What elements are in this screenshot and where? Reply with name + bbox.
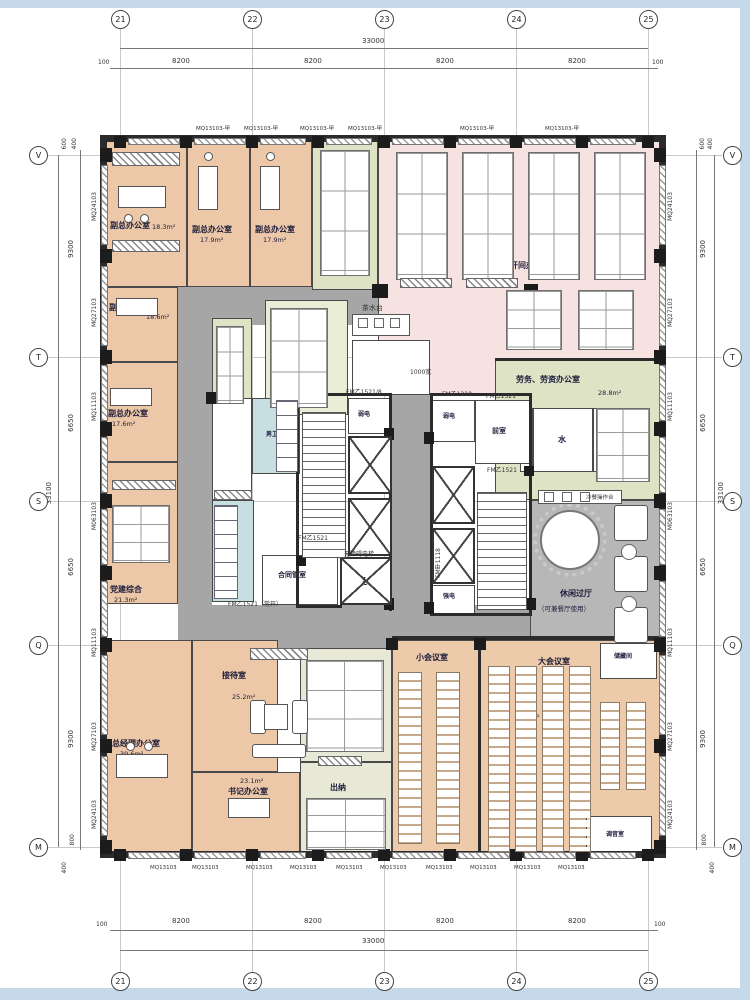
cabinet-row: [112, 480, 176, 490]
round-dining-table: [540, 510, 600, 570]
dimension-label: 800: [702, 834, 708, 845]
appliance: [390, 318, 400, 328]
meeting-chair-rows: [569, 666, 591, 852]
column: [100, 422, 112, 436]
window-strip: [659, 365, 666, 421]
window-strip: [659, 266, 666, 346]
room-label-strong-current: 强电: [443, 594, 455, 600]
corridor-left: [178, 287, 212, 657]
room-area-deputy-office-c: 17.9m²: [263, 237, 286, 244]
appliance: [358, 318, 368, 328]
dimension-label: 400: [72, 138, 78, 149]
grid-bubble-25: 25: [639, 10, 658, 29]
dimension-line: [714, 155, 715, 847]
annotation: FM乙1521（常开）: [228, 602, 282, 608]
dimension-label: 9300: [68, 730, 75, 748]
room-label-reception-room: 接待室: [222, 672, 246, 680]
grid-bubble-M: M: [29, 838, 48, 857]
room-label-anteroom: 前室: [492, 428, 506, 435]
window-strip: [101, 437, 108, 493]
wall-type-label: MQ11103: [92, 628, 98, 657]
cabinet-row: [466, 278, 518, 288]
column: [510, 136, 522, 148]
wall-type-label: MQ11103: [668, 392, 674, 421]
dimension-label: 33000: [362, 38, 384, 45]
dimension-label: 9300: [700, 240, 707, 258]
grid-bubble-Q: Q: [29, 636, 48, 655]
window-strip: [194, 852, 246, 859]
column: [654, 350, 666, 364]
column: [654, 739, 666, 753]
dimension-label: 600: [62, 138, 68, 149]
office-desk: [228, 798, 270, 818]
window-strip: [101, 266, 108, 346]
cabinet-row: [318, 756, 362, 766]
office-desk: [198, 166, 218, 210]
meeting-chair-rows: [398, 672, 422, 844]
dimension-label: 400: [708, 138, 714, 149]
wall-type-label: MQ27103: [668, 298, 674, 327]
cabinet-row: [112, 240, 180, 252]
column: [114, 849, 126, 861]
workstation-cluster: [320, 150, 370, 276]
column: [386, 638, 398, 650]
wall-type-label: MQ27103: [92, 298, 98, 327]
wall-type-label: MQ13103: [192, 866, 219, 872]
dimension-line: [58, 155, 59, 847]
workstation-cluster: [270, 308, 328, 408]
grid-bubble-22: 22: [243, 972, 262, 991]
grid-bubble-T: T: [723, 348, 742, 367]
wall-type-label: M063103: [668, 502, 674, 530]
window-strip: [101, 581, 108, 637]
column: [100, 494, 112, 508]
column: [378, 136, 390, 148]
window-strip: [458, 138, 510, 145]
column: [444, 136, 456, 148]
wall-type-label: MQ13103: [380, 866, 407, 872]
room-label-storage-room: 储藏间: [614, 654, 632, 660]
meeting-chair-rows: [600, 702, 620, 790]
window-strip: [101, 165, 108, 245]
chair: [144, 742, 153, 751]
cabinet-row: [250, 648, 308, 660]
cabinet-row: [112, 152, 180, 166]
wall-segment: [296, 605, 342, 608]
dimension-label: 8200: [568, 918, 586, 925]
wall-type-label: MQ13103: [558, 866, 585, 872]
wall-type-label: MQ11103: [92, 392, 98, 421]
meeting-chair-rows: [626, 702, 646, 790]
annotation: 1000宽: [410, 370, 431, 376]
column: [654, 840, 666, 854]
column: [206, 392, 216, 404]
column: [654, 148, 666, 162]
window-strip: [194, 138, 246, 145]
room-storage-room: [600, 643, 657, 679]
window-strip: [458, 852, 510, 859]
column: [180, 136, 192, 148]
room-deputy-office-c: [250, 140, 312, 287]
room-area-labor-office: 28.8m²: [598, 390, 621, 397]
room-label-deputy-office-a: 副总办公室: [110, 222, 150, 230]
room-area-party-building-office: 21.3m²: [114, 597, 137, 604]
room-strong-current: [432, 585, 475, 615]
column: [654, 566, 666, 580]
column: [100, 148, 112, 162]
window-strip: [326, 852, 372, 859]
workstation-cluster: [216, 326, 244, 404]
column: [654, 249, 666, 263]
wall-type-label: MQ13103: [514, 866, 541, 872]
column: [100, 350, 112, 364]
column: [312, 136, 324, 148]
grid-bubble-24: 24: [507, 10, 526, 29]
workstation-cluster: [578, 290, 634, 350]
annotation: 茶水台: [362, 305, 383, 312]
dimension-label: 6650: [68, 558, 75, 576]
workstation-cluster: [596, 408, 650, 482]
column: [654, 494, 666, 508]
grid-bubble-21: 21: [111, 972, 130, 991]
room-label-sound-room: 调音室: [606, 832, 624, 838]
room-label-deputy-office-c: 副总办公室: [255, 226, 295, 234]
dimension-label: 6650: [700, 414, 707, 432]
chair: [204, 152, 213, 161]
dimension-label: 9300: [700, 730, 707, 748]
dimension-label: 8200: [304, 918, 322, 925]
column: [100, 249, 112, 263]
grid-bubble-V: V: [723, 146, 742, 165]
annotation: FM甲1118: [436, 548, 442, 578]
column: [642, 136, 654, 148]
appliance: [544, 492, 554, 502]
room-label-large-meeting-room: 大会议室: [538, 658, 570, 666]
room-pantry-room: [352, 340, 430, 395]
office-desk: [118, 186, 166, 208]
room-label-weak-current-right: 弱电: [443, 414, 455, 420]
chair: [140, 214, 149, 223]
dimension-label: 100: [96, 922, 107, 928]
grid-bubble-M: M: [723, 838, 742, 857]
workstation-cluster: [528, 152, 580, 280]
annotation: FM乙1521: [486, 394, 516, 400]
column: [654, 422, 666, 436]
window-strip: [392, 138, 444, 145]
room-label-party-building-office: 党建综合: [110, 586, 142, 594]
wall-type-label: MQ13103-甲: [545, 127, 579, 133]
wall-type-label: MQ13103: [290, 866, 317, 872]
sofa: [292, 700, 308, 734]
dimension-label: 600: [700, 138, 706, 149]
column: [246, 136, 258, 148]
room-area-deputy-office-b: 17.9m²: [200, 237, 223, 244]
grid-bubble-S: S: [29, 492, 48, 511]
dimension-line: [696, 150, 697, 850]
column: [100, 566, 112, 580]
wall-type-label: M063103: [92, 502, 98, 530]
office-desk: [260, 166, 280, 210]
room-label-deputy-office-e: 副总办公室: [108, 410, 148, 418]
wall-type-label: MQ11103: [668, 628, 674, 657]
workstation-cluster: [112, 505, 170, 563]
dimension-line: [80, 150, 81, 850]
dimension-label: 800: [70, 834, 76, 845]
wall-type-label: MQ24103: [92, 192, 98, 221]
elevator-shaft: [432, 466, 475, 524]
column: [180, 849, 192, 861]
sofa: [614, 505, 648, 541]
dimension-label: 6650: [700, 558, 707, 576]
office-desk: [110, 388, 152, 406]
column: [576, 136, 588, 148]
appliance: [562, 492, 572, 502]
workstation-cluster: [506, 290, 562, 350]
workstation-cluster: [306, 660, 384, 752]
wall-type-label: MQ13103: [150, 866, 177, 872]
room-area-lounge-hall: （可兼餐厅使用）: [538, 606, 590, 613]
window-strip: [659, 756, 666, 836]
window-strip: [590, 138, 636, 145]
room-label-contract-room: 合同管室: [278, 572, 306, 579]
wall-type-label: MQ27103: [92, 722, 98, 751]
grid-bubble-S: S: [723, 492, 742, 511]
wall-type-label: MQ24103: [668, 192, 674, 221]
sofa: [614, 607, 648, 643]
column: [378, 849, 390, 861]
office-desk: [116, 298, 158, 316]
cabinet-row: [400, 278, 452, 288]
sofa: [614, 556, 648, 592]
dimension-label: 6650: [68, 414, 75, 432]
elevator-shaft: [348, 498, 392, 556]
chair: [126, 742, 135, 751]
chair: [266, 152, 275, 161]
room-area-secretary-office: 23.1m²: [240, 778, 263, 785]
window-strip: [659, 437, 666, 493]
wall-type-label: MQ13103: [336, 866, 363, 872]
dimension-label: 8200: [304, 58, 322, 65]
wall-type-label: MQ27103: [668, 722, 674, 751]
dimension-line: [120, 48, 648, 49]
meeting-chair-rows: [436, 672, 460, 844]
room-label-deputy-office-b: 副总办公室: [192, 226, 232, 234]
window-strip: [260, 138, 306, 145]
room-deputy-office-b: [187, 140, 250, 287]
meeting-chair-rows: [515, 666, 537, 852]
wall-segment: [529, 393, 532, 616]
room-label-water-room: 水: [558, 436, 566, 444]
workstation-cluster: [396, 152, 448, 280]
window-strip: [659, 655, 666, 735]
annotation: FM乙1521: [487, 468, 517, 474]
wall-type-label: MQ13103: [470, 866, 497, 872]
column: [424, 602, 434, 614]
column: [100, 638, 112, 652]
window-strip: [128, 138, 180, 145]
window-strip: [101, 655, 108, 735]
cabinet-row: [214, 490, 252, 500]
window-strip: [524, 138, 576, 145]
grid-bubble-23: 23: [375, 10, 394, 29]
stair-right: [477, 492, 527, 610]
room-label-cashier-office: 出纳: [330, 784, 346, 792]
wall-type-label: MQ13103: [246, 866, 273, 872]
wall-type-label: MQ13103-甲: [460, 127, 494, 133]
dimension-label: 9300: [68, 240, 75, 258]
grid-bubble-22: 22: [243, 10, 262, 29]
column: [312, 849, 324, 861]
window-strip: [590, 852, 636, 859]
side-table: [621, 544, 637, 560]
office-desk: [116, 754, 168, 778]
window-strip: [659, 581, 666, 637]
meeting-chair-rows: [542, 666, 564, 852]
dimension-label: 8200: [172, 918, 190, 925]
room-label-weak-current-left: 弱电: [358, 412, 370, 418]
wall-type-label: MQ24103: [668, 800, 674, 829]
chair: [124, 214, 133, 223]
wall-type-label: MQ13103-甲: [196, 127, 230, 133]
column: [474, 638, 486, 650]
window-strip: [128, 852, 180, 859]
dimension-label: 400: [62, 862, 68, 873]
annotation: FM乙1218: [442, 392, 472, 398]
annotation: 冷餐操作台: [586, 496, 614, 502]
dimension-line: [110, 930, 658, 931]
room-label-labor-office: 劳务、劳资办公室: [516, 376, 580, 384]
column: [654, 638, 666, 652]
annotation: FM乙1521/8: [346, 390, 382, 396]
room-area-deputy-office-a: 18.3m²: [152, 224, 175, 231]
room-area-deputy-office-e: 17.6m²: [112, 421, 135, 428]
sofa: [252, 744, 306, 758]
grid-bubble-21: 21: [111, 10, 130, 29]
grid-bubble-V: V: [29, 146, 48, 165]
window-strip: [659, 165, 666, 245]
room-label-small-meeting-room: 小会议室: [416, 654, 448, 662]
coffee-table: [264, 704, 288, 730]
room-weak-current-right: [432, 400, 475, 442]
window-strip: [101, 509, 108, 565]
column: [424, 432, 434, 444]
annotation: 无障碍电梯: [344, 552, 374, 558]
wall-type-label: MQ24103: [92, 800, 98, 829]
wall-segment: [495, 358, 662, 361]
workstation-cluster: [462, 152, 514, 280]
meeting-chair-rows: [488, 666, 510, 852]
dimension-label: 8200: [172, 58, 190, 65]
dimension-label: 33000: [362, 938, 384, 945]
grid-bubble-T: T: [29, 348, 48, 367]
column: [246, 849, 258, 861]
column: [100, 840, 112, 854]
dimension-label: 100: [98, 60, 109, 66]
plan-layer: 副总办公室18.3m²副总办公室17.9m²副总办公室17.9m²经营科6人大开…: [0, 0, 750, 1000]
wall-type-label: MQ13103-甲: [348, 127, 382, 133]
room-locker-room: [212, 398, 252, 500]
column: [100, 739, 112, 753]
window-strip: [326, 138, 372, 145]
workstation-cluster: [594, 152, 646, 280]
dimension-label: 100: [652, 60, 663, 66]
wall-segment: [478, 640, 481, 857]
appliance: [374, 318, 384, 328]
dimension-label: 8200: [436, 58, 454, 65]
toilet-stalls: [214, 505, 238, 599]
elevator-shaft: [348, 436, 392, 494]
dimension-label: 8200: [436, 918, 454, 925]
annotation: FM乙1521: [298, 536, 328, 542]
column: [444, 849, 456, 861]
floorplan-canvas: 副总办公室18.3m²副总办公室17.9m²副总办公室17.9m²经营科6人大开…: [0, 0, 750, 1000]
column: [372, 284, 388, 298]
wall-type-label: MQ13103-甲: [300, 127, 334, 133]
dimension-line: [110, 68, 658, 69]
window-strip: [659, 509, 666, 565]
grid-bubble-25: 25: [639, 972, 658, 991]
column: [642, 849, 654, 861]
window-strip: [392, 852, 444, 859]
dimension-line: [120, 950, 648, 951]
window-strip: [524, 852, 576, 859]
column: [114, 136, 126, 148]
wall-type-label: MQ13103: [426, 866, 453, 872]
grid-bubble-Q: Q: [723, 636, 742, 655]
dimension-label: 100: [654, 922, 665, 928]
window-strip: [101, 365, 108, 421]
grid-bubble-24: 24: [507, 972, 526, 991]
dimension-label: 400: [710, 862, 716, 873]
room-label-lounge-hall: 休闲过厅: [560, 590, 592, 598]
dimension-label: 8200: [568, 58, 586, 65]
window-strip: [260, 852, 306, 859]
room-label-secretary-office: 书记办公室: [228, 788, 268, 796]
window-strip: [101, 756, 108, 836]
workstation-cluster: [306, 798, 386, 850]
grid-bubble-23: 23: [375, 972, 394, 991]
column: [524, 466, 534, 476]
toilet-stalls: [276, 400, 298, 472]
accessible-elevator: ♿: [340, 557, 392, 605]
side-table: [621, 596, 637, 612]
wall-type-label: MQ13103-甲: [244, 127, 278, 133]
wall-segment: [430, 613, 532, 616]
